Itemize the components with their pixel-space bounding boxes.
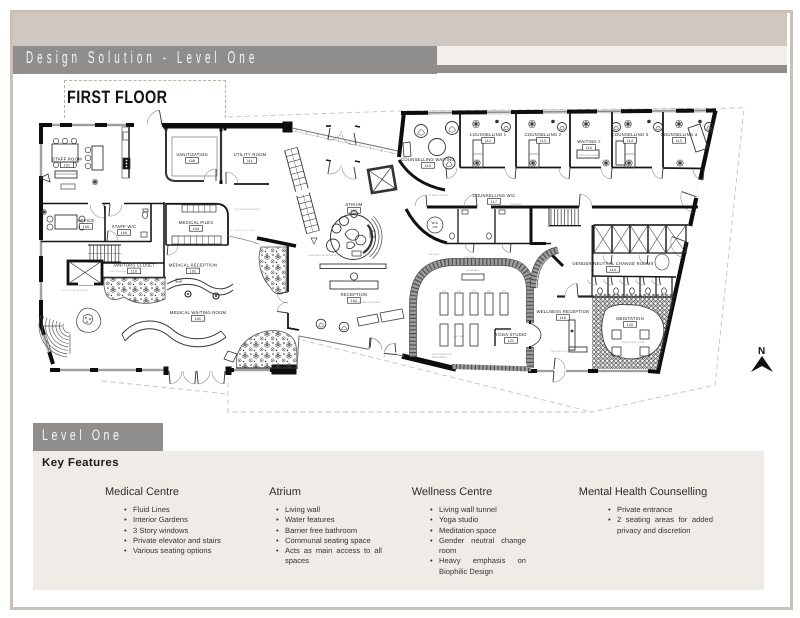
svg-text:UTILITY ROOM: UTILITY ROOM [234, 152, 267, 157]
svg-text:WELLNESS RECEPTION: WELLNESS RECEPTION [537, 309, 590, 314]
svg-text:121: 121 [508, 339, 514, 343]
svg-text:MATS STORED FOR: MATS STORED FOR [432, 353, 452, 356]
svg-text:105: 105 [195, 317, 201, 321]
svg-text:111: 111 [247, 159, 253, 163]
svg-text:113: 113 [540, 139, 546, 143]
svg-text:LIVE WALL: LIVE WALL [510, 203, 522, 206]
svg-text:LIVE WALL 12 FT HIGH: LIVE WALL 12 FT HIGH [551, 350, 575, 353]
svg-text:RAIN GARDEN: RAIN GARDEN [110, 270, 127, 273]
svg-text:COUNSELLING W/C: COUNSELLING W/C [472, 193, 515, 198]
svg-text:MEDITATION: MEDITATION [616, 316, 644, 321]
svg-text:106: 106 [432, 225, 438, 229]
svg-text:COUNSELLING 4: COUNSELLING 4 [661, 132, 698, 137]
svg-text:116: 116 [586, 146, 592, 150]
svg-text:12 FT WIDE HALLWAY: 12 FT WIDE HALLWAY [426, 194, 449, 197]
svg-text:SANITIZATION: SANITIZATION [176, 152, 208, 157]
svg-text:MAT: MAT [457, 290, 462, 293]
svg-text:STAFF ROOM: STAFF ROOM [52, 157, 82, 162]
svg-text:114: 114 [627, 139, 633, 143]
svg-text:WOOD BENCH: WOOD BENCH [344, 280, 360, 283]
svg-text:PRIVATE QUIET ROOM: PRIVATE QUIET ROOM [608, 358, 632, 361]
svg-text:MAT: MAT [487, 290, 492, 293]
svg-text:LIVING WALL: LIVING WALL [467, 269, 481, 272]
svg-text:MEDICAL FILES: MEDICAL FILES [179, 220, 214, 225]
svg-text:109: 109 [83, 225, 89, 229]
svg-text:12' HIGH GLASS WALL: 12' HIGH GLASS WALL [230, 229, 257, 232]
svg-text:GENDER NEUTRAL CHANGE ROOMS: GENDER NEUTRAL CHANGE ROOMS [572, 261, 653, 266]
svg-text:LIVE WALL: LIVE WALL [464, 256, 476, 259]
svg-text:115: 115 [676, 139, 682, 143]
svg-text:110: 110 [131, 270, 137, 274]
svg-text:MAT: MAT [472, 290, 477, 293]
svg-text:COUNSELLING 3: COUNSELLING 3 [612, 132, 649, 137]
svg-text:120: 120 [627, 323, 633, 327]
svg-text:MEDICAL WAITING ROOM: MEDICAL WAITING ROOM [170, 310, 227, 315]
svg-text:YOGA STUDIO: YOGA STUDIO [495, 332, 527, 337]
svg-text:COUNSELLING 2: COUNSELLING 2 [525, 132, 562, 137]
svg-text:LIVE WALL: LIVE WALL [453, 335, 465, 338]
svg-text:102: 102 [190, 270, 196, 274]
svg-text:OFFICE: OFFICE [78, 218, 95, 223]
svg-text:MAT: MAT [502, 290, 507, 293]
svg-text:FOR MEDICAL PRIVACY: FOR MEDICAL PRIVACY [576, 157, 600, 160]
svg-text:LIVE WALL: LIVE WALL [428, 253, 440, 256]
svg-text:117: 117 [491, 200, 497, 204]
svg-text:SECOND WAITING AREA: SECOND WAITING AREA [576, 154, 601, 157]
svg-text:OPEN SPACES: OPEN SPACES [432, 356, 447, 359]
svg-text:ATRIUM: ATRIUM [345, 202, 363, 207]
svg-text:118: 118 [560, 316, 566, 320]
svg-text:COUNSELLING 1: COUNSELLING 1 [470, 132, 507, 137]
svg-text:119: 119 [610, 268, 616, 272]
svg-text:SEATING SPACE: SEATING SPACE [626, 304, 643, 307]
svg-text:113: 113 [425, 164, 431, 168]
svg-text:N: N [758, 346, 765, 357]
svg-text:WAITING 2: WAITING 2 [577, 139, 601, 144]
svg-text:MAT: MAT [442, 290, 447, 293]
svg-text:RECEPTION: RECEPTION [341, 292, 368, 297]
svg-text:LIVING WALL W/ WATERFALL: LIVING WALL W/ WATERFALL [308, 254, 339, 257]
svg-text:108: 108 [189, 159, 195, 163]
svg-text:PRIVATE QUIET ROOM: PRIVATE QUIET ROOM [622, 341, 645, 344]
svg-text:101: 101 [64, 164, 70, 168]
svg-text:104: 104 [193, 227, 199, 231]
svg-text:12 FT HIGH GLASS WALL: 12 FT HIGH GLASS WALL [355, 301, 382, 304]
svg-text:106: 106 [121, 231, 127, 235]
svg-text:MEDICAL RECEPTION: MEDICAL RECEPTION [169, 263, 217, 268]
svg-text:STAFF W/C: STAFF W/C [112, 224, 137, 229]
svg-text:112: 112 [485, 139, 491, 143]
svg-text:STAIR TO MAIN FLOOR: STAIR TO MAIN FLOOR [62, 289, 89, 292]
svg-text:12 FT HIGH GLASS WALL: 12 FT HIGH GLASS WALL [234, 208, 261, 211]
svg-text:JANITORS CLOSET: JANITORS CLOSET [113, 263, 155, 268]
